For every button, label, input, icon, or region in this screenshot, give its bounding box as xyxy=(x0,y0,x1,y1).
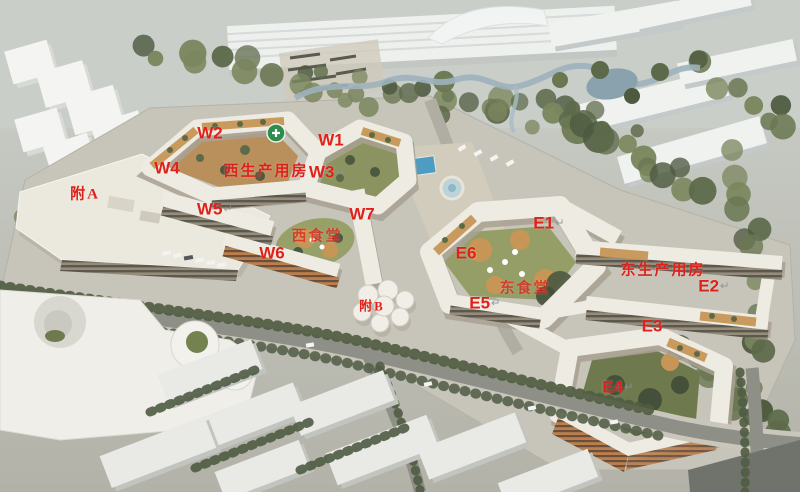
aerial-site-rendering xyxy=(0,0,800,492)
helipad-icon xyxy=(267,124,285,142)
plaza-pool xyxy=(414,156,436,176)
aerial-rendering-screenshot: W2W1W4西生产用房W3↵附AW5↵W7E1↵西食堂E6W6东生产用房E2↵东… xyxy=(0,0,800,492)
